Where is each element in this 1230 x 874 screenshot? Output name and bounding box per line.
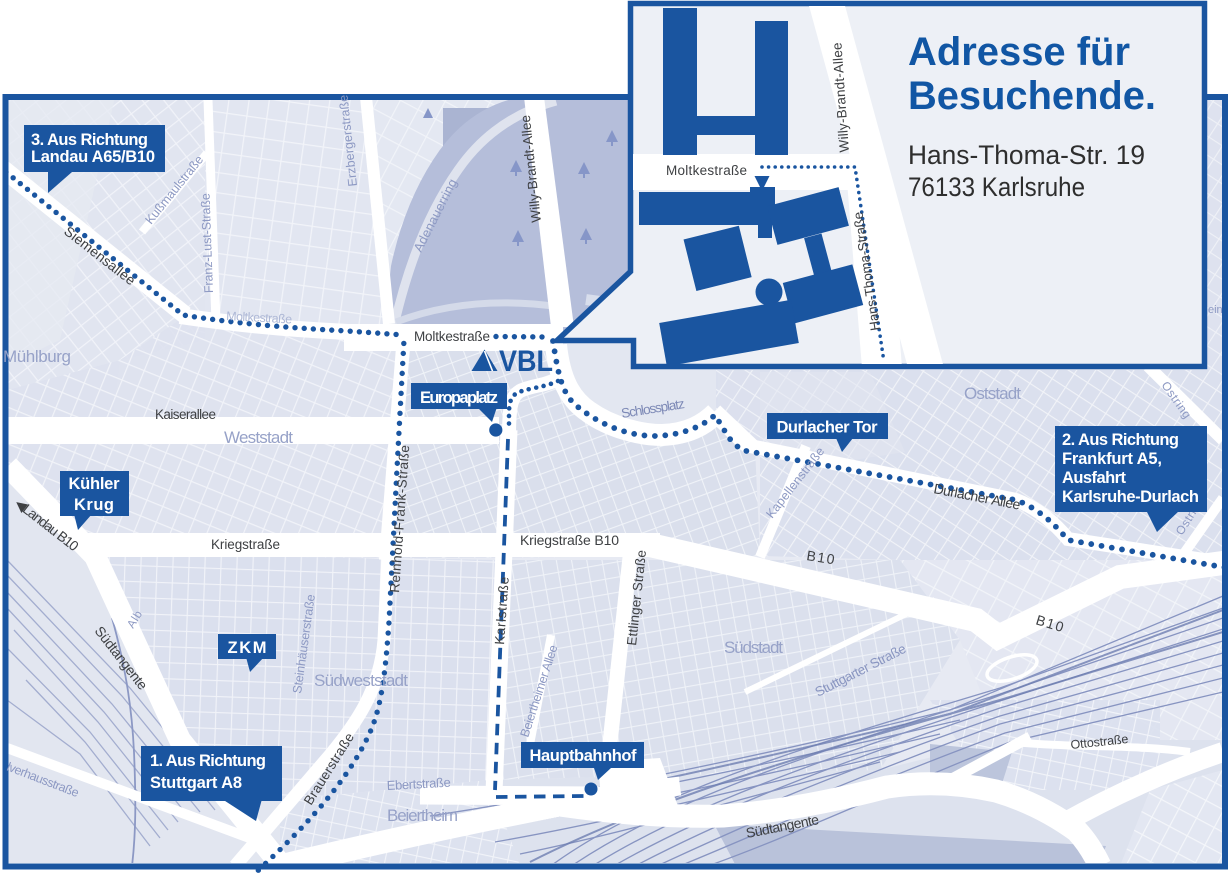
svg-text:Weststadt: Weststadt (224, 428, 293, 447)
svg-text:VBL: VBL (499, 345, 553, 378)
svg-text:ein: ein (1208, 304, 1223, 316)
svg-text:Beiertheim: Beiertheim (387, 806, 458, 825)
svg-text:Karlsruhe-Durlach: Karlsruhe-Durlach (1062, 488, 1199, 506)
svg-text:Besuchende.: Besuchende. (908, 74, 1156, 118)
svg-text:Moltkestraße: Moltkestraße (666, 163, 747, 178)
svg-text:Kriegstraße B10: Kriegstraße B10 (520, 532, 619, 548)
svg-text:2. Aus Richtung: 2. Aus Richtung (1062, 431, 1179, 449)
svg-text:Südweststadt: Südweststadt (314, 671, 408, 690)
svg-text:Kaiserallee: Kaiserallee (155, 407, 216, 422)
svg-text:Mühlburg: Mühlburg (3, 347, 71, 366)
svg-text:Südstadt: Südstadt (724, 638, 783, 657)
svg-text:Ausfahrt: Ausfahrt (1062, 469, 1127, 487)
svg-text:Hans-Thoma-Str. 19: Hans-Thoma-Str. 19 (908, 140, 1145, 170)
svg-text:76133 Karlsruhe: 76133 Karlsruhe (908, 172, 1085, 202)
svg-text:Landau A65/B10: Landau A65/B10 (31, 148, 155, 166)
svg-text:Kühler: Kühler (69, 475, 121, 493)
svg-text:3. Aus Richtung: 3. Aus Richtung (31, 131, 148, 149)
svg-text:Kriegstraße: Kriegstraße (211, 537, 280, 552)
svg-text:Moltkestraße: Moltkestraße (414, 329, 490, 344)
svg-text:Oststadt: Oststadt (964, 384, 1021, 403)
svg-text:Krug: Krug (74, 496, 114, 514)
svg-text:Hauptbahnhof: Hauptbahnhof (530, 747, 638, 765)
svg-text:Europaplatz: Europaplatz (420, 389, 498, 407)
svg-text:1. Aus Richtung: 1. Aus Richtung (150, 752, 266, 770)
svg-text:Durlacher Tor: Durlacher Tor (777, 419, 879, 437)
svg-text:Stuttgart A8: Stuttgart A8 (150, 774, 242, 792)
svg-text:ZKM: ZKM (228, 639, 267, 657)
svg-text:Frankfurt A5,: Frankfurt A5, (1062, 450, 1162, 468)
svg-text:Adresse für: Adresse für (908, 30, 1130, 74)
